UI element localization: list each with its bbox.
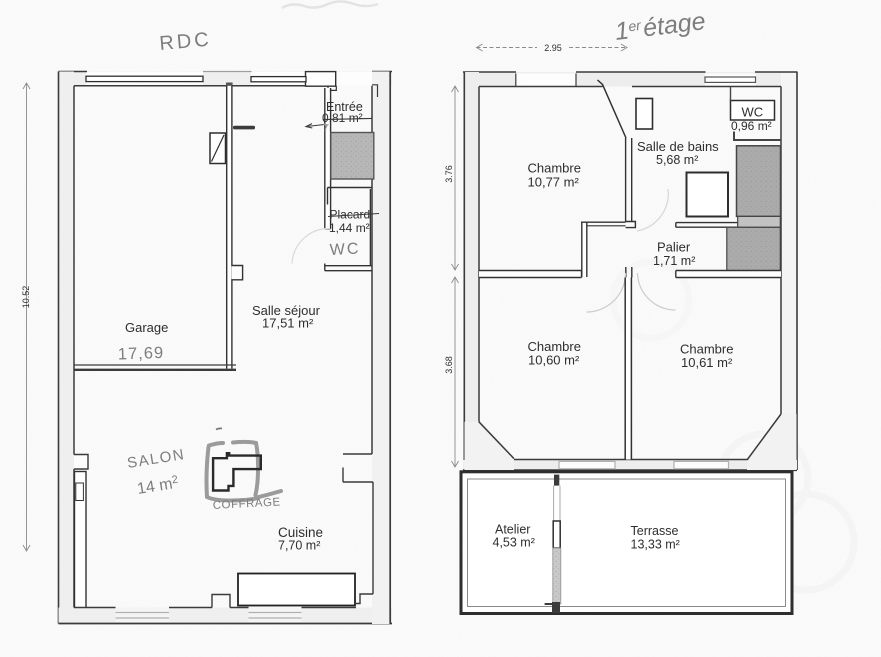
svg-text:5,68 m²: 5,68 m² xyxy=(656,153,698,167)
svg-text:2.95: 2.95 xyxy=(544,43,562,53)
svg-text:3.76: 3.76 xyxy=(444,165,454,183)
svg-text:10,60 m²: 10,60 m² xyxy=(528,353,580,368)
svg-text:4,53 m²: 4,53 m² xyxy=(493,536,535,550)
svg-text:Chambre: Chambre xyxy=(528,161,581,176)
svg-text:Terrasse: Terrasse xyxy=(631,524,679,538)
svg-text:1,71 m²: 1,71 m² xyxy=(653,254,695,268)
svg-text:Palier: Palier xyxy=(657,240,691,255)
svg-text:10,77 m²: 10,77 m² xyxy=(528,175,580,190)
svg-text:Garage: Garage xyxy=(125,320,168,335)
svg-text:3.68: 3.68 xyxy=(444,356,454,374)
svg-text:17,51 m²: 17,51 m² xyxy=(262,316,314,331)
svg-text:Atelier: Atelier xyxy=(495,523,530,537)
svg-text:10.52: 10.52 xyxy=(21,286,31,309)
svg-text:7,70 m²: 7,70 m² xyxy=(278,539,320,553)
svg-text:Salle de bains: Salle de bains xyxy=(637,139,719,154)
svg-text:WC: WC xyxy=(742,105,764,120)
svg-text:0,96 m²: 0,96 m² xyxy=(731,119,772,133)
svg-text:RDC: RDC xyxy=(159,29,213,55)
svg-text:17,69: 17,69 xyxy=(118,344,165,364)
svg-text:1,44 m²: 1,44 m² xyxy=(329,221,370,235)
svg-text:WC: WC xyxy=(329,240,361,259)
svg-text:13,33 m²: 13,33 m² xyxy=(631,538,680,552)
svg-text:0,81 m²: 0,81 m² xyxy=(322,111,363,125)
svg-text:10,61 m²: 10,61 m² xyxy=(681,355,733,370)
